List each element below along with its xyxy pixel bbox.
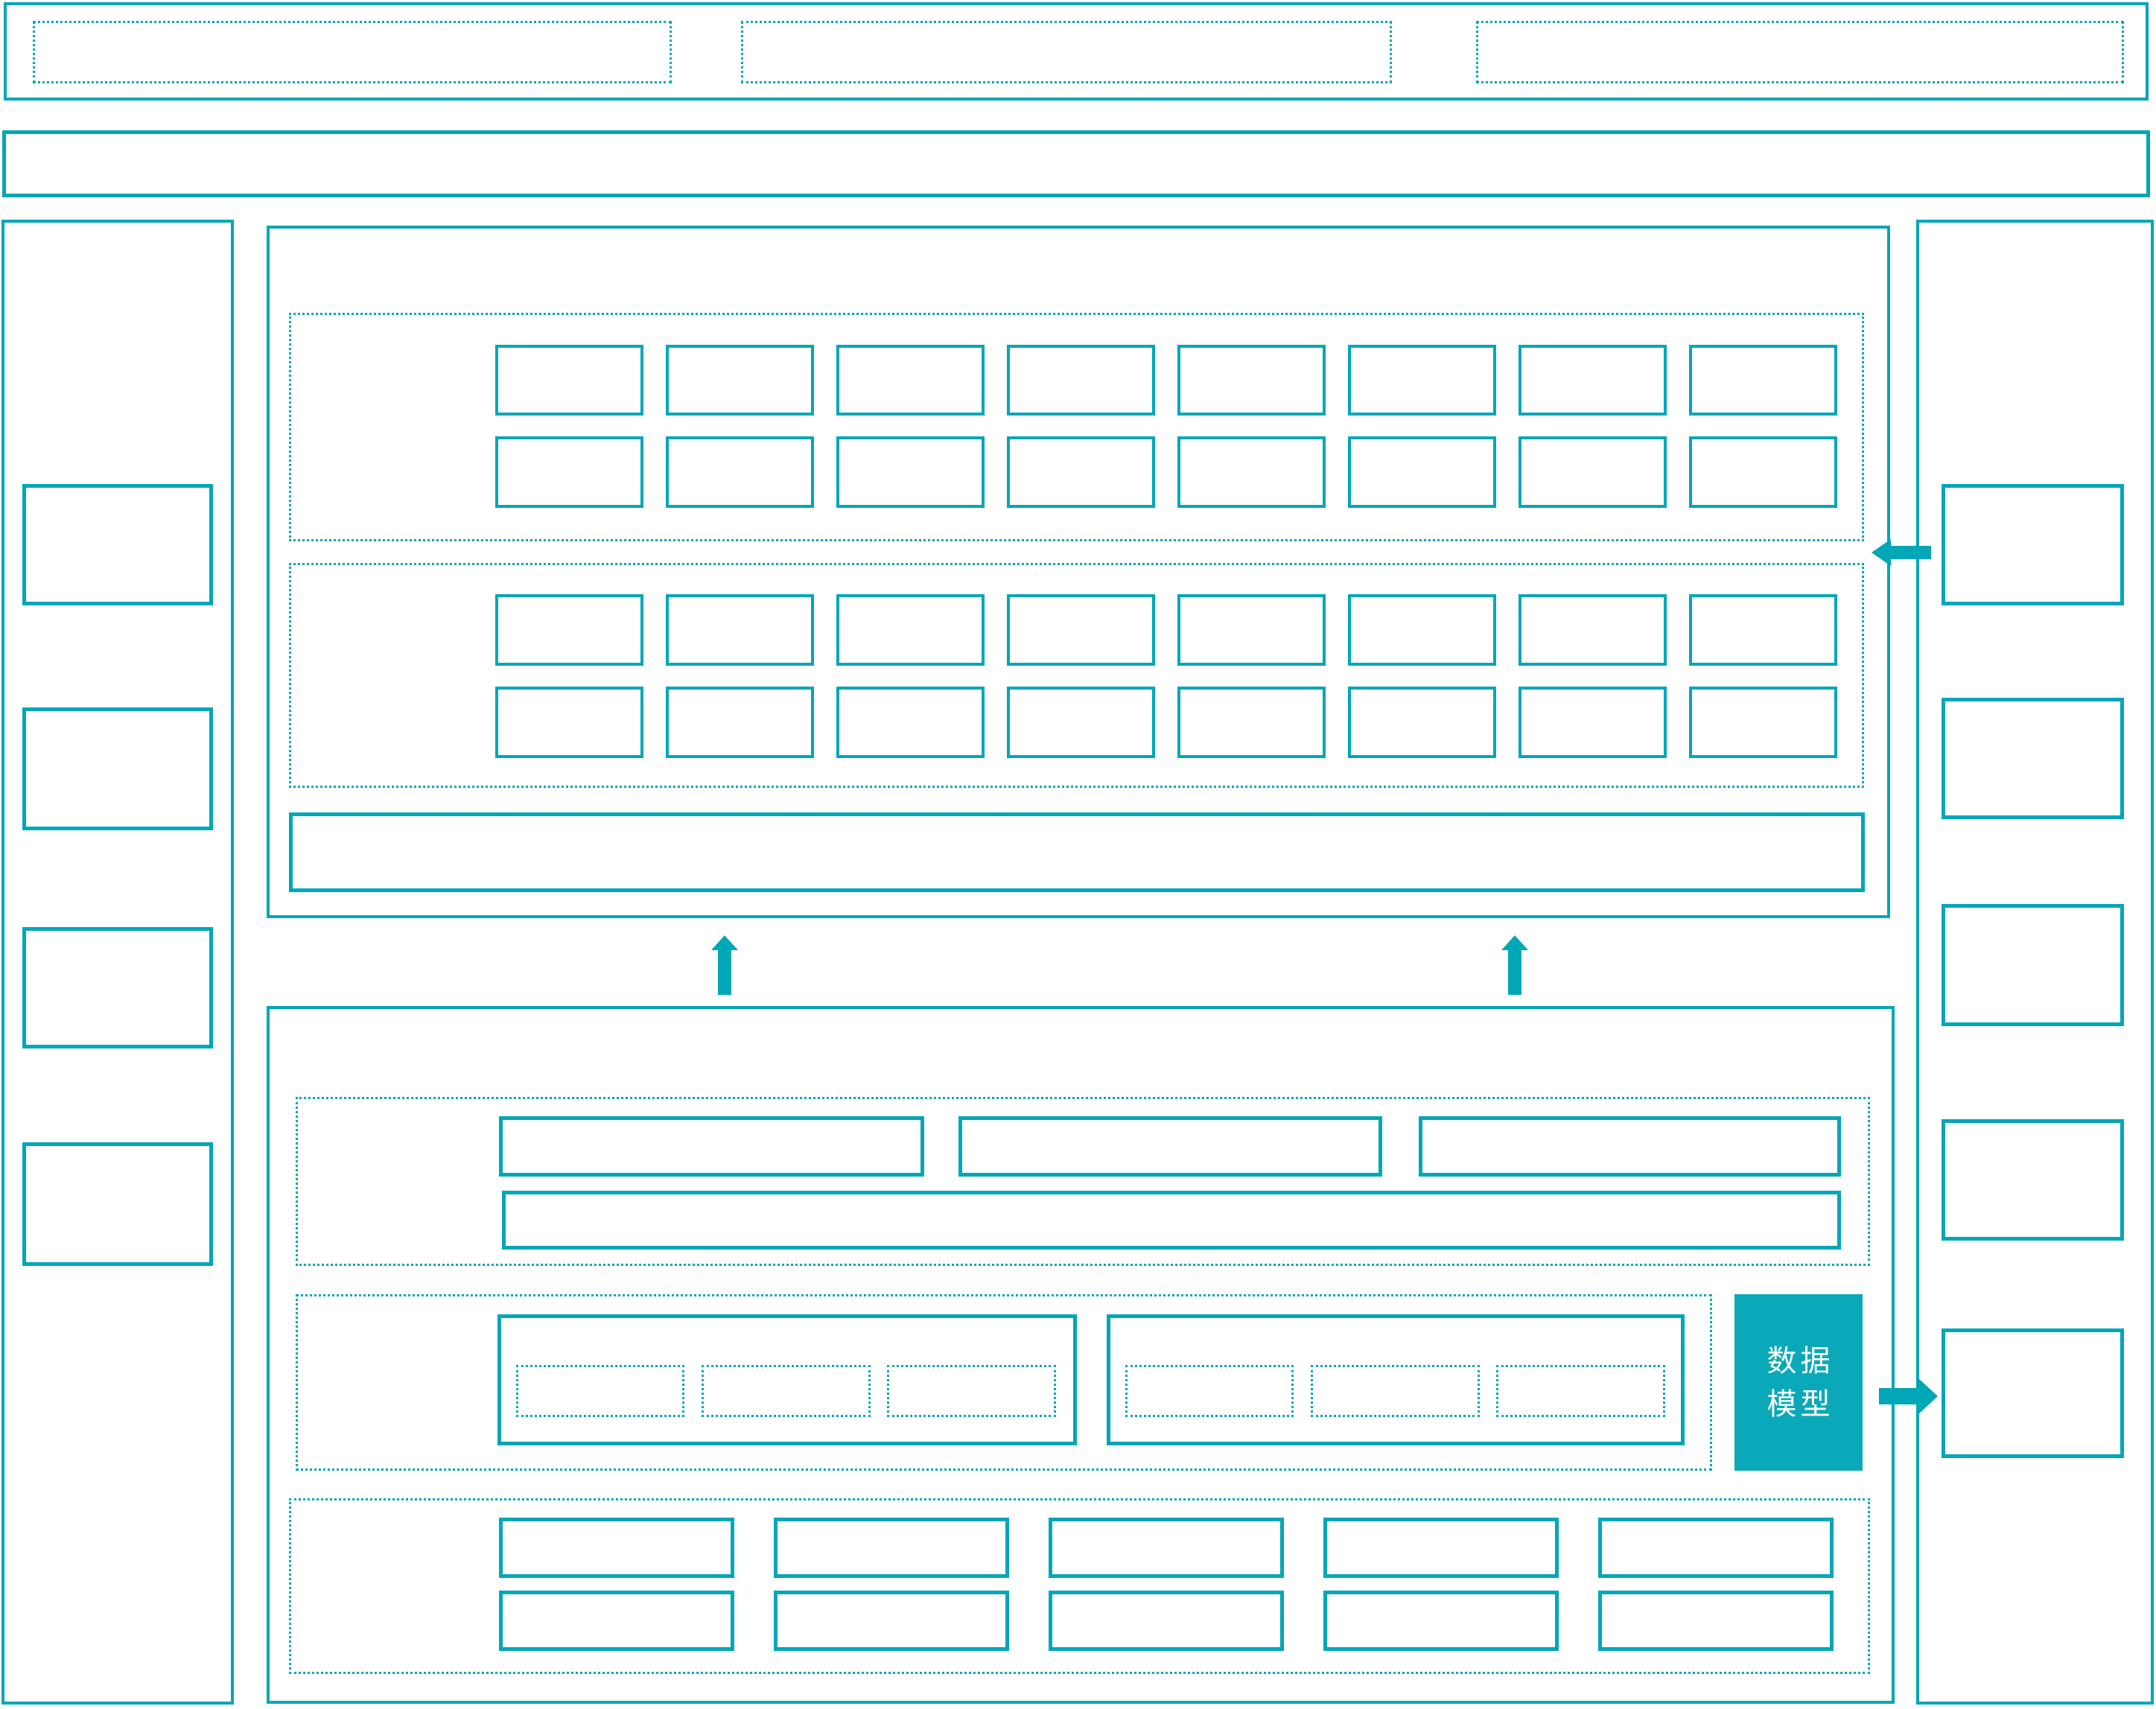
lower-section1-wide-bar xyxy=(502,1191,1841,1250)
module-box xyxy=(1007,687,1155,758)
module-box xyxy=(666,345,814,416)
top-header-slot-center xyxy=(741,21,1392,83)
group-b-slot-2 xyxy=(1311,1365,1480,1417)
right-sidebar-column xyxy=(1916,220,2154,1705)
module-box xyxy=(1049,1591,1284,1651)
lower-section3-row2 xyxy=(499,1591,1834,1651)
upper-section2-row1 xyxy=(495,594,1837,666)
module-box xyxy=(1519,594,1667,666)
left-sidebar-box-4 xyxy=(22,1142,213,1266)
module-box xyxy=(1007,436,1155,508)
module-box xyxy=(495,687,643,758)
module-box xyxy=(836,345,985,416)
module-box xyxy=(1177,687,1326,758)
module-box xyxy=(666,436,814,508)
second-band xyxy=(2,130,2150,197)
group-a-slot-3 xyxy=(887,1365,1056,1417)
module-box xyxy=(836,594,985,666)
upper-section1-row2 xyxy=(495,436,1837,508)
top-header-bar xyxy=(4,2,2149,101)
module-box xyxy=(1007,345,1155,416)
lower-group-box-a xyxy=(497,1314,1077,1445)
module-box xyxy=(499,1591,734,1651)
left-arrow-head xyxy=(1872,539,1891,566)
module-box xyxy=(1519,436,1667,508)
lower-section3-row1 xyxy=(499,1518,1834,1578)
lower-section1-box-1 xyxy=(499,1116,924,1177)
module-box xyxy=(1519,345,1667,416)
module-box xyxy=(836,436,985,508)
module-box xyxy=(1598,1591,1834,1651)
group-a-slot-1 xyxy=(516,1365,684,1417)
left-sidebar-box-3 xyxy=(22,927,213,1048)
module-box xyxy=(1598,1518,1834,1578)
upper-dotted-section-1 xyxy=(289,313,1864,541)
upper-section2-row2 xyxy=(495,687,1837,758)
module-box xyxy=(1689,687,1837,758)
up-arrow-icon xyxy=(711,935,738,995)
data-model-label-line2: 模型 xyxy=(1764,1383,1834,1426)
upper-section1-row1 xyxy=(495,345,1837,416)
module-box xyxy=(1689,345,1837,416)
module-box xyxy=(1689,594,1837,666)
group-b-slot-1 xyxy=(1125,1365,1294,1417)
right-sidebar-box-5 xyxy=(1942,1328,2124,1458)
module-box xyxy=(836,687,985,758)
module-box xyxy=(666,687,814,758)
top-header-slot-left xyxy=(33,21,672,83)
module-box xyxy=(1323,1518,1559,1578)
group-b-slot-3 xyxy=(1496,1365,1665,1417)
top-header-slot-right xyxy=(1476,21,2124,83)
right-sidebar-box-1 xyxy=(1942,484,2124,605)
module-box xyxy=(1323,1591,1559,1651)
module-box xyxy=(1177,594,1326,666)
right-arrow-head xyxy=(1918,1378,1938,1414)
module-box xyxy=(1519,687,1667,758)
right-sidebar-box-4 xyxy=(1942,1119,2124,1241)
lower-section1-box-3 xyxy=(1419,1116,1841,1177)
architecture-diagram: 数据 模型 xyxy=(0,0,2156,1709)
up-arrow-icon xyxy=(1501,935,1528,995)
upper-dotted-section-2 xyxy=(289,563,1864,788)
up-arrow-head xyxy=(711,935,738,950)
lower-dotted-section-2 xyxy=(296,1294,1712,1471)
up-arrow-stem xyxy=(1508,950,1521,995)
module-box xyxy=(1007,594,1155,666)
module-box xyxy=(1177,345,1326,416)
upper-main-panel xyxy=(267,226,1890,918)
lower-dotted-section-3 xyxy=(289,1498,1870,1674)
module-box xyxy=(1348,687,1496,758)
module-box xyxy=(1348,436,1496,508)
group-a-slot-2 xyxy=(702,1365,871,1417)
left-arrow-stem xyxy=(1891,546,1931,559)
lower-main-panel: 数据 模型 xyxy=(267,1006,1895,1704)
up-arrow-stem xyxy=(718,950,731,995)
module-box xyxy=(1177,436,1326,508)
left-arrow-icon xyxy=(1872,539,1931,566)
module-box xyxy=(1049,1518,1284,1578)
module-box xyxy=(666,594,814,666)
module-box xyxy=(1689,436,1837,508)
upper-wide-bar xyxy=(289,812,1865,892)
lower-section1-box-2 xyxy=(958,1116,1382,1177)
data-model-box: 数据 模型 xyxy=(1734,1294,1863,1471)
module-box xyxy=(774,1591,1009,1651)
lower-dotted-section-1 xyxy=(296,1097,1870,1266)
left-sidebar-box-1 xyxy=(22,484,213,605)
right-sidebar-box-3 xyxy=(1942,904,2124,1026)
data-model-label-line1: 数据 xyxy=(1764,1340,1834,1383)
module-box xyxy=(499,1518,734,1578)
left-sidebar-column xyxy=(1,220,234,1705)
module-box xyxy=(774,1518,1009,1578)
module-box xyxy=(1348,594,1496,666)
left-sidebar-box-2 xyxy=(22,707,213,830)
lower-group-box-b xyxy=(1107,1314,1685,1445)
right-sidebar-box-2 xyxy=(1942,698,2124,819)
module-box xyxy=(1348,345,1496,416)
module-box xyxy=(495,436,643,508)
module-box xyxy=(495,345,643,416)
module-box xyxy=(495,594,643,666)
up-arrow-head xyxy=(1501,935,1528,950)
